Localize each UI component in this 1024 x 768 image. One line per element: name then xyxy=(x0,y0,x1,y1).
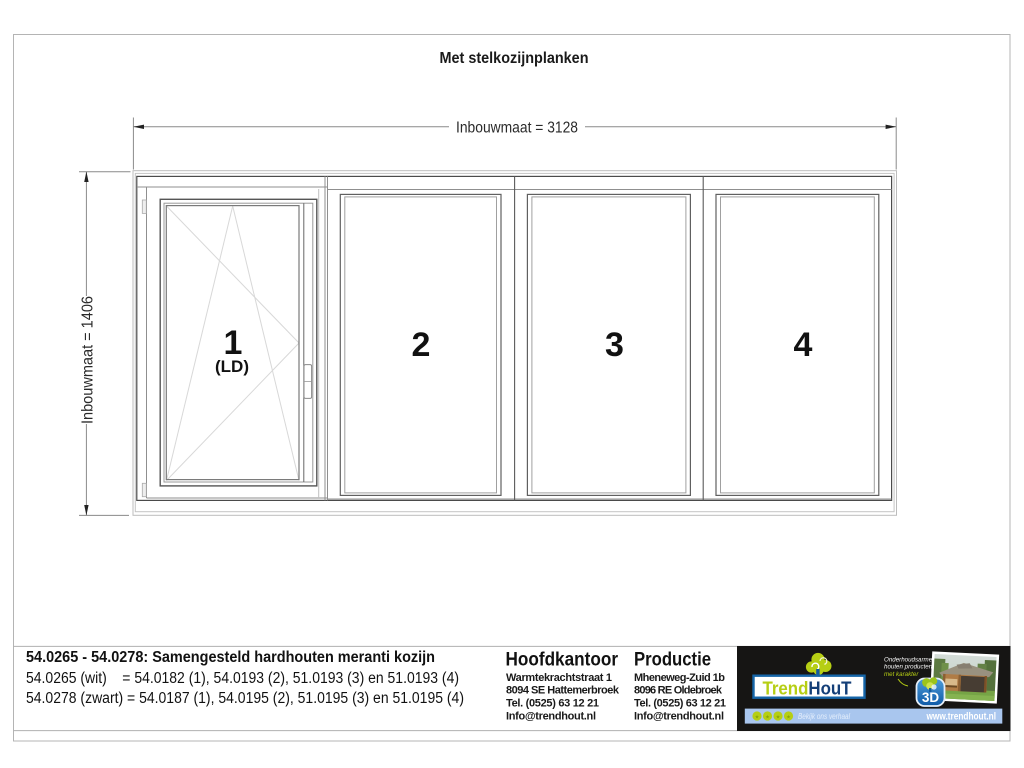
svg-text:★: ★ xyxy=(776,714,781,720)
svg-text:3D: 3D xyxy=(922,690,940,705)
svg-text:Info@trendhout.nl: Info@trendhout.nl xyxy=(634,710,724,722)
svg-text:★: ★ xyxy=(786,714,791,720)
svg-text:TrendHouT: TrendHouT xyxy=(763,679,852,699)
svg-text:★: ★ xyxy=(755,714,760,720)
svg-text:54.0265 (wit) = 54.0182 (1): 54.0265 (wit) = 54.0182 (1), 54.0193 (2)… xyxy=(26,670,459,687)
svg-text:Info@trendhout.nl: Info@trendhout.nl xyxy=(506,710,596,722)
svg-text:Mheneweg-Zuid 1b: Mheneweg-Zuid 1b xyxy=(634,672,725,684)
svg-text:Warmtekrachtstraat 1: Warmtekrachtstraat 1 xyxy=(506,672,612,684)
svg-text:8094 SE Hattemerbroek: 8094 SE Hattemerbroek xyxy=(506,685,620,697)
svg-text:Bekijk ons verhaal: Bekijk ons verhaal xyxy=(798,711,851,721)
svg-text:Tel. (0525) 63 12 21: Tel. (0525) 63 12 21 xyxy=(634,698,726,710)
svg-text:8096 RE Oldebroek: 8096 RE Oldebroek xyxy=(634,685,723,697)
svg-text:met karakter: met karakter xyxy=(884,671,919,678)
svg-text:Inbouwmaat = 1406: Inbouwmaat = 1406 xyxy=(79,296,96,424)
svg-text:Hoofdkantoor: Hoofdkantoor xyxy=(506,650,619,671)
svg-text:Met stelkozijnplanken: Met stelkozijnplanken xyxy=(440,50,589,67)
svg-text:2: 2 xyxy=(412,326,431,364)
svg-text:★: ★ xyxy=(765,714,770,720)
svg-text:www.trendhout.nl: www.trendhout.nl xyxy=(926,711,996,723)
svg-text:Onderhoudsarme: Onderhoudsarme xyxy=(884,657,933,664)
svg-text:4: 4 xyxy=(794,326,813,364)
svg-text:houten producten: houten producten xyxy=(884,664,933,671)
svg-text:54.0278 (zwart) = 54.0187 (1),: 54.0278 (zwart) = 54.0187 (1), 54.0195 (… xyxy=(26,690,464,707)
svg-text:3: 3 xyxy=(605,326,624,364)
svg-text:Tel. (0525) 63 12 21: Tel. (0525) 63 12 21 xyxy=(506,698,599,710)
svg-text:Inbouwmaat = 3128: Inbouwmaat = 3128 xyxy=(456,120,578,137)
svg-text:Productie: Productie xyxy=(634,650,711,671)
svg-text:54.0265 - 54.0278: Samengestel: 54.0265 - 54.0278: Samengesteld hardhout… xyxy=(26,649,435,666)
svg-text:(LD): (LD) xyxy=(215,357,249,376)
